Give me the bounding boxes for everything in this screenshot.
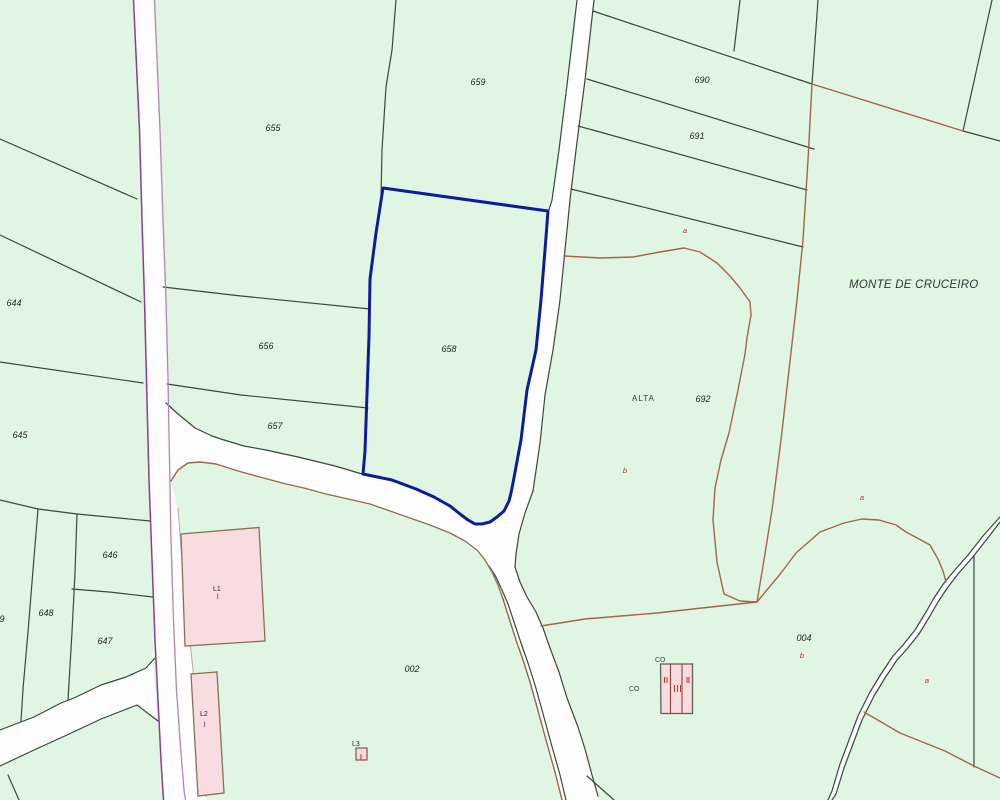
svg-text:656: 656 <box>258 341 273 351</box>
svg-text:004: 004 <box>796 633 811 643</box>
svg-text:9: 9 <box>0 614 5 624</box>
svg-text:CO: CO <box>629 686 640 693</box>
svg-text:a: a <box>683 226 687 235</box>
svg-text:644: 644 <box>6 298 21 308</box>
svg-text:646: 646 <box>102 550 117 560</box>
svg-text:647: 647 <box>97 636 113 646</box>
svg-text:658: 658 <box>441 344 456 354</box>
svg-text:a: a <box>860 493 864 502</box>
svg-text:657: 657 <box>267 421 283 431</box>
svg-text:b: b <box>800 651 804 660</box>
svg-text:690: 690 <box>694 75 709 85</box>
svg-text:L3: L3 <box>352 741 360 748</box>
svg-text:692: 692 <box>695 394 710 404</box>
svg-text:b: b <box>623 466 627 475</box>
svg-text:648: 648 <box>38 608 53 618</box>
svg-text:a: a <box>925 676 929 685</box>
svg-text:MONTE DE CRUCEIRO: MONTE DE CRUCEIRO <box>849 279 978 291</box>
svg-text:L1: L1 <box>213 586 221 593</box>
svg-text:645: 645 <box>12 430 28 440</box>
svg-text:ALTA: ALTA <box>632 394 655 403</box>
svg-text:691: 691 <box>689 131 704 141</box>
svg-text:L2: L2 <box>200 711 208 718</box>
svg-text:655: 655 <box>265 123 281 133</box>
svg-text:659: 659 <box>470 77 485 87</box>
svg-text:002: 002 <box>404 664 419 674</box>
svg-text:CO: CO <box>655 657 666 664</box>
